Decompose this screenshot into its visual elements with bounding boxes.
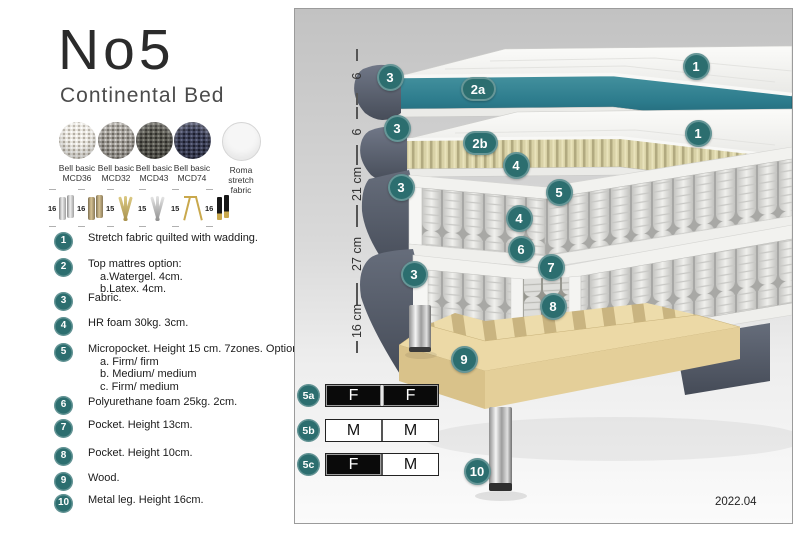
firmness-row-5c: 5c F M (297, 453, 439, 476)
bed-infographic: No5 Continental Bed Bell basicMCD36 Bell… (0, 0, 800, 533)
diagram-callout-1: 1 (685, 120, 712, 147)
legend-number-badge: 7 (54, 419, 73, 438)
ruler-tick (356, 215, 358, 227)
leg-height: 15 (171, 189, 179, 227)
legend-number-badge: 8 (54, 447, 73, 466)
ruler-measurement-label: 16 cm (350, 299, 364, 343)
legend-subitem: a. Firm/ firm (100, 356, 301, 369)
legend-item: 7 Pocket. Height 13cm. (54, 419, 193, 438)
legend-number-badge: 5 (54, 343, 73, 362)
firmness-row-badge: 5a (297, 384, 320, 407)
legend-number-badge: 1 (54, 232, 73, 251)
cyl-silver-leg-icon (59, 195, 76, 222)
fabric-swatch: Romastretch fabric (219, 122, 263, 195)
fabric-swatch-circle (59, 122, 96, 159)
legend-item: 9 Wood. (54, 472, 120, 491)
legend-text: Fabric. (88, 292, 122, 305)
legend-item: 1 Stretch fabric quilted with wadding. (54, 232, 258, 251)
legend-text: Micropocket. Height 15 cm. 7zones. Optio… (88, 343, 301, 393)
legend-item: 2 Top mattres option:a.Watergel. 4cm.b.L… (54, 258, 183, 296)
diagram-callout-4: 4 (506, 205, 533, 232)
legend-text: Pocket. Height 10cm. (88, 447, 193, 460)
diagram-callout-5: 5 (546, 179, 573, 206)
diagram-callout-3: 3 (384, 115, 411, 142)
diagram-callout-3: 3 (401, 261, 428, 288)
legend-item: 8 Pocket. Height 10cm. (54, 447, 193, 466)
diagram-callout-10: 10 (464, 458, 491, 485)
legend-number-badge: 2 (54, 258, 73, 277)
legend-number-badge: 6 (54, 396, 73, 415)
firmness-row-5a: 5a F F (297, 384, 439, 407)
legend-item: 4 HR foam 30kg. 3cm. (54, 317, 188, 336)
legend-text: Polyurethane foam 25kg. 2cm. (88, 396, 237, 409)
firmness-bar: F M (325, 453, 439, 476)
fabric-swatch: Bell basicMCD36 (55, 122, 99, 183)
legend-number-badge: 9 (54, 472, 73, 491)
firmness-row-5b: 5b M M (297, 419, 439, 442)
fabric-swatch: Bell basicMCD74 (170, 122, 214, 183)
ruler-measurement-label: 27 cm (350, 232, 364, 276)
legend-number-badge: 10 (54, 494, 73, 513)
diagram-callout-1: 1 (683, 53, 710, 80)
leg-height: 16 (48, 189, 56, 227)
diagram-panel: 6621 cm27 cm16 cm 12a12b3333445678910 5a… (294, 8, 793, 524)
legend-text: HR foam 30kg. 3cm. (88, 317, 188, 330)
ruler-measurement-label: 6 (350, 54, 364, 98)
page-title: No5 (58, 22, 175, 79)
leg-option: 15 (106, 188, 134, 228)
fabric-swatch-label: Bell basicMCD36 (55, 163, 99, 183)
leg-option: 16 (48, 188, 76, 228)
fabric-swatch-circle (98, 122, 135, 159)
firmness-bar: M M (325, 419, 439, 442)
firmness-bar: F F (325, 384, 439, 407)
diagram-callout-2a: 2a (461, 77, 496, 101)
leg-height: 15 (138, 189, 146, 227)
diagram-callout-3: 3 (388, 174, 415, 201)
ruler-measurement-label: 21 cm (350, 162, 364, 206)
legend-text: Top mattres option:a.Watergel. 4cm.b.Lat… (88, 258, 183, 296)
leg-option: 16 (205, 188, 233, 228)
diagram-callout-8: 8 (540, 293, 567, 320)
cyl-bronze-leg-icon (88, 195, 105, 222)
firmness-cell: M (383, 420, 438, 441)
leg-option: 16 (77, 188, 105, 228)
block-black-leg-icon (216, 195, 233, 222)
firmness-cell: F (326, 454, 381, 475)
diagram-callout-9: 9 (451, 346, 478, 373)
fabric-swatch-circle (222, 122, 261, 161)
legend-number-badge: 3 (54, 292, 73, 311)
firmness-cell: M (326, 420, 381, 441)
leg-option: 15 (171, 188, 199, 228)
ruler-measurement-label: 6 (350, 110, 364, 154)
twist-gold-leg-icon (117, 195, 134, 222)
firmness-row-badge: 5c (297, 453, 320, 476)
diagram-callout-6: 6 (508, 236, 535, 263)
legend-subitem: a.Watergel. 4cm. (100, 271, 183, 284)
legend-subitem: c. Firm/ medium (100, 381, 301, 394)
legend-subitem: b. Medium/ medium (100, 368, 301, 381)
legend-number-badge: 4 (54, 317, 73, 336)
leg-height: 15 (106, 189, 114, 227)
firmness-row-badge: 5b (297, 419, 320, 442)
legend-text: Wood. (88, 472, 120, 485)
diagram-callout-7: 7 (538, 254, 565, 281)
twist-silver-leg-icon (149, 195, 166, 222)
firmness-cell: M (383, 454, 438, 475)
legend-item: 10 Metal leg. Height 16cm. (54, 494, 204, 513)
fabric-swatch-label: Bell basicMCD74 (170, 163, 214, 183)
fabric-swatch-circle (174, 122, 211, 159)
firmness-cell: F (383, 385, 438, 406)
leg-height: 16 (205, 189, 213, 227)
legend-text: Stretch fabric quilted with wadding. (88, 232, 258, 245)
firmness-cell: F (326, 385, 381, 406)
legend-item: 6 Polyurethane foam 25kg. 2cm. (54, 396, 237, 415)
version-label: 2022.04 (715, 496, 757, 508)
legend-text: Metal leg. Height 16cm. (88, 494, 204, 507)
diagram-callout-2b: 2b (463, 131, 498, 155)
legend-text: Pocket. Height 13cm. (88, 419, 193, 432)
diagram-callout-3: 3 (377, 64, 404, 91)
page-subtitle: Continental Bed (60, 84, 224, 108)
legend-item: 5 Micropocket. Height 15 cm. 7zones. Opt… (54, 343, 301, 393)
leg-height: 16 (77, 189, 85, 227)
hairpin-gold-leg-icon (182, 195, 199, 222)
legend-item: 3 Fabric. (54, 292, 122, 311)
diagram-callout-4: 4 (503, 152, 530, 179)
fabric-swatch-circle (136, 122, 173, 159)
leg-option: 15 (138, 188, 166, 228)
